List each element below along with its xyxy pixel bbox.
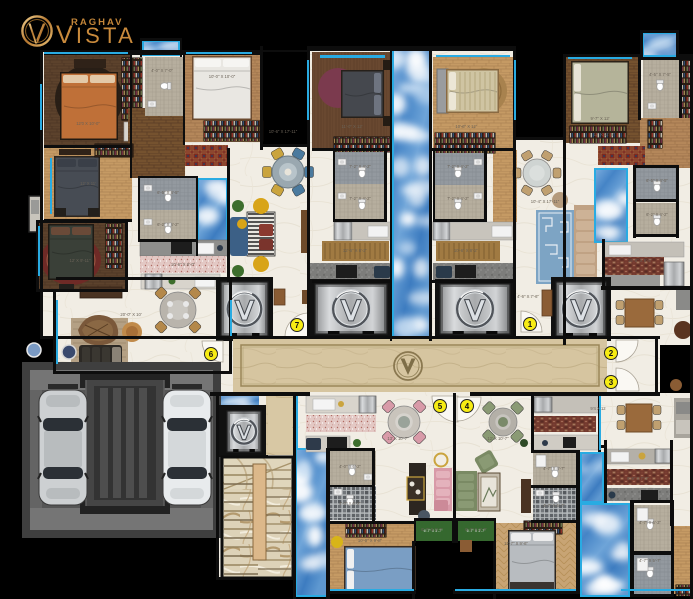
- svg-text:4'-7" X 5'-7": 4'-7" X 5'-7": [639, 558, 661, 563]
- svg-text:4'-5" X 7'-5": 4'-5" X 7'-5": [649, 72, 671, 77]
- svg-text:12' X 9'-11": 12' X 9'-11": [70, 258, 91, 263]
- svg-text:7'-2" X 4'-2": 7'-2" X 4'-2": [349, 196, 371, 201]
- svg-text:11'-0" X 12': 11'-0" X 12': [342, 124, 363, 129]
- svg-text:2: 2: [609, 349, 614, 358]
- svg-text:9'-6" X 7'-2": 9'-6" X 7'-2": [627, 476, 649, 481]
- svg-text:4'-0" X 7'-0": 4'-0" X 7'-0": [151, 68, 173, 73]
- svg-text:12' X 10'-7": 12' X 10'-7": [487, 436, 509, 441]
- svg-text:6'-7" X 3'-7": 6'-7" X 3'-7": [465, 527, 487, 532]
- svg-text:4'-7" X 4'-7": 4'-7" X 4'-7": [543, 466, 565, 471]
- svg-text:6'-2" X 4'-2": 6'-2" X 4'-2": [157, 222, 179, 227]
- svg-text:5: 5: [438, 402, 443, 411]
- svg-text:3: 3: [609, 378, 614, 387]
- svg-text:VISTA: VISTA: [56, 21, 136, 49]
- svg-text:11'-7" X 9'-6": 11'-7" X 9'-6": [504, 541, 528, 546]
- svg-text:7: 7: [295, 321, 300, 330]
- svg-text:12' X 11': 12' X 11': [80, 181, 96, 186]
- svg-text:6: 6: [209, 350, 214, 359]
- svg-text:4'-6" X 7'-6": 4'-6" X 7'-6": [517, 294, 539, 299]
- svg-text:10'-0" X 10'-0": 10'-0" X 10'-0": [209, 74, 236, 79]
- svg-text:1: 1: [528, 320, 533, 329]
- svg-text:10'-0" X 9'-8": 10'-0" X 9'-8": [358, 538, 383, 543]
- svg-text:10'-6" X 12': 10'-6" X 12': [455, 124, 476, 129]
- svg-text:12'0 X 10'-0": 12'0 X 10'-0": [76, 121, 100, 126]
- svg-text:10'-6" X 8'-2": 10'-6" X 8'-2": [454, 248, 479, 253]
- svg-text:12' X 11'-5": 12' X 11'-5": [594, 132, 615, 137]
- svg-text:20'-0" X 10': 20'-0" X 10': [120, 312, 141, 317]
- svg-text:6'-7" X 3'-7": 6'-7" X 3'-7": [421, 527, 443, 532]
- svg-text:12'-6" X 8'-2": 12'-6" X 8'-2": [343, 248, 368, 253]
- svg-text:4'-0" X 6'-2": 4'-0" X 6'-2": [339, 501, 361, 506]
- svg-text:13' X 10'-7": 13' X 10'-7": [387, 436, 409, 441]
- svg-text:7'-2" X 4'-2": 7'-2" X 4'-2": [349, 164, 371, 169]
- svg-text:4: 4: [465, 402, 470, 411]
- svg-text:10'-4" X 17'-11": 10'-4" X 17'-11": [531, 199, 560, 204]
- svg-text:4'-0" X 6'-2": 4'-0" X 6'-2": [339, 464, 361, 469]
- svg-text:15'-0" X 6'-5": 15'-0" X 6'-5": [628, 258, 653, 263]
- svg-text:10'-6" X 17'-11": 10'-6" X 17'-11": [269, 129, 298, 134]
- svg-text:4'-7" X 5'-7": 4'-7" X 5'-7": [543, 503, 565, 508]
- svg-text:6'-5" X 4'-5": 6'-5" X 4'-5": [646, 178, 668, 183]
- svg-text:6'-2" X 4'-2": 6'-2" X 4'-2": [646, 212, 668, 217]
- svg-text:9'4 X 12: 9'4 X 12: [590, 406, 606, 411]
- svg-text:7'-2" X 4'-2": 7'-2" X 4'-2": [447, 164, 469, 169]
- svg-text:9'-7" X 12': 9'-7" X 12': [591, 116, 610, 121]
- svg-text:7'-2" X 4'-2": 7'-2" X 4'-2": [447, 196, 469, 201]
- svg-text:4'-7" X 6'-3": 4'-7" X 6'-3": [639, 520, 661, 525]
- svg-text:6'-5" X 4'-5": 6'-5" X 4'-5": [157, 190, 179, 195]
- svg-text:10'-6" X 8'-0": 10'-6" X 8'-0": [171, 262, 196, 267]
